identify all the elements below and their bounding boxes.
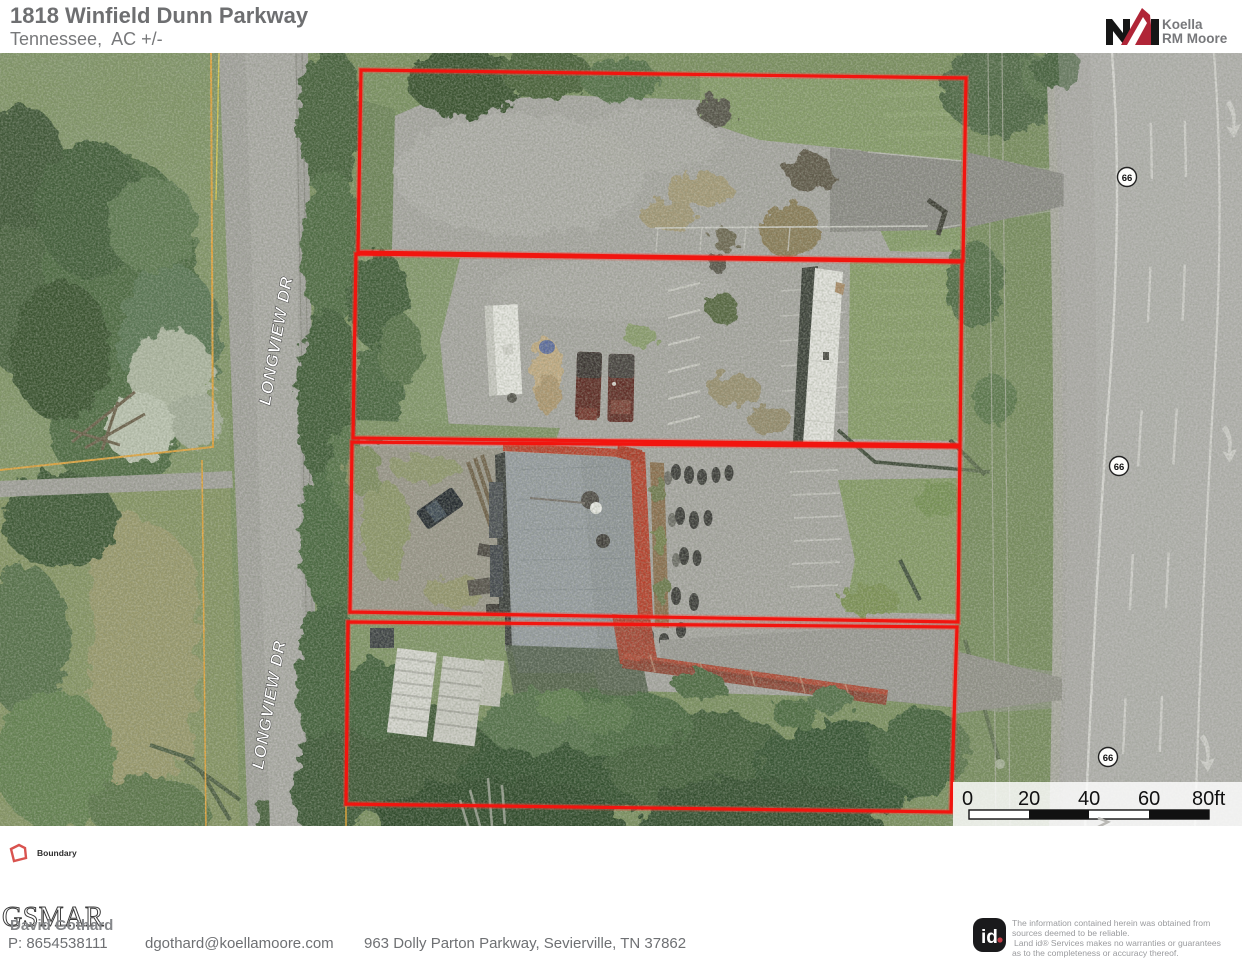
svg-text:RM Moore: RM Moore — [1162, 31, 1228, 46]
svg-text:Land id® Services makes no war: Land id® Services makes no warranties or… — [1014, 938, 1221, 948]
svg-text:Tennessee, AC +/-: Tennessee, AC +/- — [10, 29, 163, 49]
svg-text:David Gothard: David Gothard — [10, 917, 113, 934]
svg-text:0: 0 — [962, 788, 973, 810]
svg-text:Boundary: Boundary — [37, 848, 77, 858]
svg-text:id: id — [981, 927, 998, 948]
svg-text:40: 40 — [1078, 788, 1100, 810]
svg-text:80ft: 80ft — [1192, 788, 1226, 810]
svg-text:as to the completeness or accu: as to the completeness or accuracy there… — [1012, 948, 1179, 958]
svg-text:963 Dolly Parton Parkway, Sevi: 963 Dolly Parton Parkway, Sevierville, T… — [364, 935, 686, 952]
svg-text:The information contained here: The information contained herein was obt… — [1012, 918, 1210, 928]
svg-text:Koella: Koella — [1162, 17, 1203, 32]
svg-text:60: 60 — [1138, 788, 1160, 810]
svg-text:66: 66 — [1122, 173, 1133, 184]
svg-text:1818 Winfield Dunn Parkway: 1818 Winfield Dunn Parkway — [10, 3, 309, 28]
svg-text:20: 20 — [1018, 788, 1040, 810]
svg-text:sources deemed to be reliable.: sources deemed to be reliable. — [1012, 928, 1130, 938]
svg-text:dgothard@koellamoore.com: dgothard@koellamoore.com — [145, 935, 334, 952]
svg-text:66: 66 — [1114, 462, 1125, 473]
svg-text:P: 8654538111: P: 8654538111 — [8, 935, 108, 952]
svg-text:66: 66 — [1103, 753, 1114, 764]
